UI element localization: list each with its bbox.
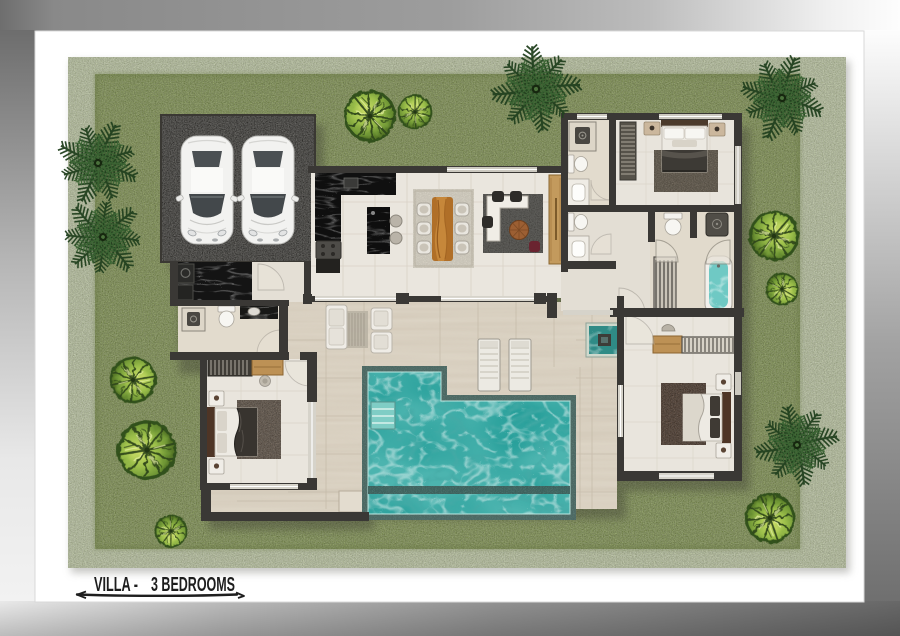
svg-text:VILLA -: VILLA - xyxy=(94,574,138,596)
svg-text:3 BEDROOMS: 3 BEDROOMS xyxy=(151,574,235,596)
